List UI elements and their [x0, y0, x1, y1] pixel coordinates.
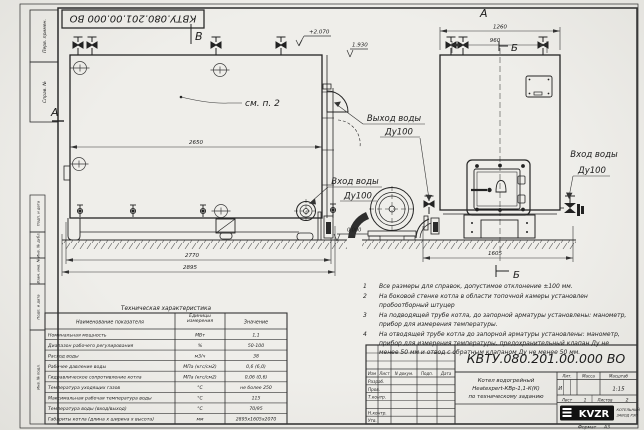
margin-label: Подп. и дата: [37, 294, 41, 320]
drawing-sheet: Перв. примен. Справ. № Подп. и дата Инв.…: [0, 0, 644, 430]
spec-cell: Гидравлическое сопротивление котла: [48, 375, 142, 381]
tb-header-cell: Изм: [368, 371, 376, 376]
margin-label: Справ. №: [42, 81, 48, 103]
spec-cell: 70/95: [249, 406, 262, 412]
spec-cell: °С: [197, 406, 203, 412]
spec-cell: Номинальная мощность: [48, 332, 107, 338]
spec-table-title: Техническая характеристика: [121, 306, 212, 312]
spec-cell: Рабочее давление воды: [48, 364, 106, 370]
tb-role: Утв.: [368, 418, 377, 423]
note-text: На отводящей трубе котла до запорной арм…: [379, 330, 628, 357]
view-a-label: А: [479, 7, 488, 20]
spec-rows: Номинальная мощностьМВт1,1 Диапазон рабо…: [47, 332, 276, 422]
note-item: 3 На подводящей трубе котла, до запорной…: [360, 311, 628, 329]
tb-sheets-value: 2: [626, 397, 629, 403]
tb-role: Т.контр.: [368, 395, 386, 400]
title-block-headers: Изм Лист N докум. Подп. Дата: [368, 371, 452, 376]
marker-b-bottom: Б: [513, 270, 520, 281]
label-water-inlet-mid: Вход воды: [331, 177, 379, 187]
marker-a-side: А: [50, 106, 59, 119]
note-item: 4 На отводящей трубе котла до запорной а…: [360, 330, 628, 357]
note-number: 2: [360, 292, 377, 310]
spec-cell: 0,6 (6,0): [246, 364, 266, 370]
leader-arrows: [309, 102, 573, 205]
spec-cell: не более 250: [240, 385, 272, 391]
callout-see-note-2: см. п. 2: [245, 99, 280, 109]
margin-label: Инв. № подл.: [37, 364, 41, 389]
dimension-arrows: [62, 29, 573, 273]
spec-cell: %: [198, 343, 202, 349]
spec-cell: Температура воды (вход/выход): [48, 406, 127, 412]
note-number: 4: [360, 330, 377, 357]
spec-cell: 1,1: [252, 332, 259, 338]
title-block-name: Котел водогрейный Heatexpert-КВр-1,1-К(К…: [469, 378, 544, 400]
dim-2895: 2895: [183, 265, 197, 271]
spec-cell: 115: [252, 396, 261, 402]
kvzr-logo-text: KVZR: [579, 409, 610, 420]
marker-b-top: Б: [511, 43, 518, 54]
spec-cell: 50-100: [248, 343, 264, 349]
spec-cell: °С: [197, 396, 203, 402]
elevation-zero: 0.000: [347, 228, 361, 234]
tb-format-value: А3: [603, 425, 610, 430]
tb-scale-label: Масштаб: [609, 374, 629, 379]
drawing-canvas: Перв. примен. Справ. № Подп. и дата Инв.…: [0, 0, 644, 430]
note-item: 1 Все размеры для справок, допустимое от…: [360, 282, 628, 291]
spec-header-value: Значение: [244, 320, 268, 326]
tb-header-cell: N докум.: [395, 371, 414, 376]
dim-1605: 1605: [488, 251, 502, 257]
label-water-inlet-right: Вход воды: [570, 150, 618, 160]
spec-cell: Максимальная рабочая температура воды: [48, 396, 152, 402]
tb-scale-value: 1:15: [612, 387, 625, 393]
spec-cell: Расход воды: [48, 353, 79, 359]
tb-name-line: Котел водогрейный: [478, 378, 535, 384]
label-water-outlet: Выход воды: [367, 114, 421, 124]
spec-cell: м3/ч: [195, 353, 206, 359]
dimensions: [62, 27, 573, 276]
margin-label: Подп. и дата: [37, 200, 41, 226]
ground-line: [62, 240, 576, 249]
tb-format-label: Формат: [578, 425, 597, 430]
spec-cell: Диапазон рабочего регулирования: [47, 343, 134, 349]
spec-cell: МПа (кгс/см2): [183, 375, 217, 381]
tb-sheets-label: Листов: [597, 397, 614, 402]
tb-lit-label: Лит.: [561, 374, 571, 379]
note-text: На подводящей трубе котла, до запорной а…: [379, 311, 628, 329]
margin-label: Перв. примен.: [42, 19, 48, 53]
pipe-leaders: [311, 104, 610, 202]
spec-cell: °С: [197, 385, 203, 391]
tb-name-line: Heatexpert-КВр-1,1-К(К): [472, 386, 540, 392]
tb-role: Н.контр.: [368, 410, 387, 415]
dim-2770: 2770: [185, 253, 199, 259]
tb-lit-value: И: [558, 386, 562, 392]
marker-v: В: [195, 30, 203, 43]
spec-cell: МВт: [195, 332, 205, 338]
spec-cell: 2895х1605х2070: [236, 417, 277, 423]
note-text: На боковой стенке котла в области топочн…: [379, 292, 628, 310]
spec-header-name: Наименование показателя: [76, 320, 144, 326]
label-outlet-dn: Ду100: [384, 128, 413, 138]
spec-cell: Габариты котла (длина х ширина х высота): [48, 417, 154, 423]
label-inlet-mid-dn: Ду100: [343, 192, 372, 202]
elevation-mid: 1.930: [352, 43, 368, 49]
tb-sheet-value: 1: [584, 397, 587, 403]
tb-org-line1: КОТЕЛЬНЫЙ: [617, 407, 641, 412]
doc-number-stamp: КВТУ.080.201.00.000 ВО: [69, 13, 196, 24]
margin-label: Инв. № дубл.: [37, 232, 41, 257]
tb-org-line2: ЗАВОД РЭП: [617, 414, 639, 418]
spec-cell: Температура уходящих газов: [48, 385, 120, 391]
tb-role: Пров.: [368, 387, 380, 392]
boiler-front-view: [424, 48, 584, 264]
tb-role: Разраб.: [368, 379, 384, 384]
tb-sheet-label: Лист: [561, 397, 573, 402]
spec-cell: мм: [197, 418, 204, 423]
tb-name-line: по техническому заданию: [469, 394, 544, 400]
spec-header-units: Единицы измерения: [176, 314, 224, 328]
dim-2650: 2650: [189, 140, 203, 146]
spec-cell: 0,06 (0,6): [245, 375, 268, 381]
kvzr-logo: KVZR: [560, 406, 614, 421]
note-text: Все размеры для справок, допустимое откл…: [379, 282, 628, 291]
spec-cell: 38: [253, 353, 259, 359]
label-inlet-right-dn: Ду100: [577, 166, 606, 176]
tb-header-cell: Дата: [440, 371, 452, 376]
notes-list: 1 Все размеры для справок, допустимое от…: [360, 282, 628, 358]
tb-mass-label: Масса: [582, 374, 595, 379]
margin-labels: Перв. примен. Справ. № Подп. и дата Инв.…: [37, 19, 49, 390]
tb-header-cell: Подп.: [421, 371, 433, 376]
note-item: 2 На боковой стенке котла в области топо…: [360, 292, 628, 310]
tb-header-cell: Лист: [378, 371, 390, 376]
spec-cell: МПа (кгс/см2): [183, 364, 217, 370]
note-number: 1: [360, 282, 377, 291]
elevation-top: +2.070: [309, 30, 330, 36]
dim-1260: 1260: [493, 25, 507, 31]
note-number: 3: [360, 311, 377, 329]
margin-label: Взам. инв. №: [37, 258, 41, 283]
